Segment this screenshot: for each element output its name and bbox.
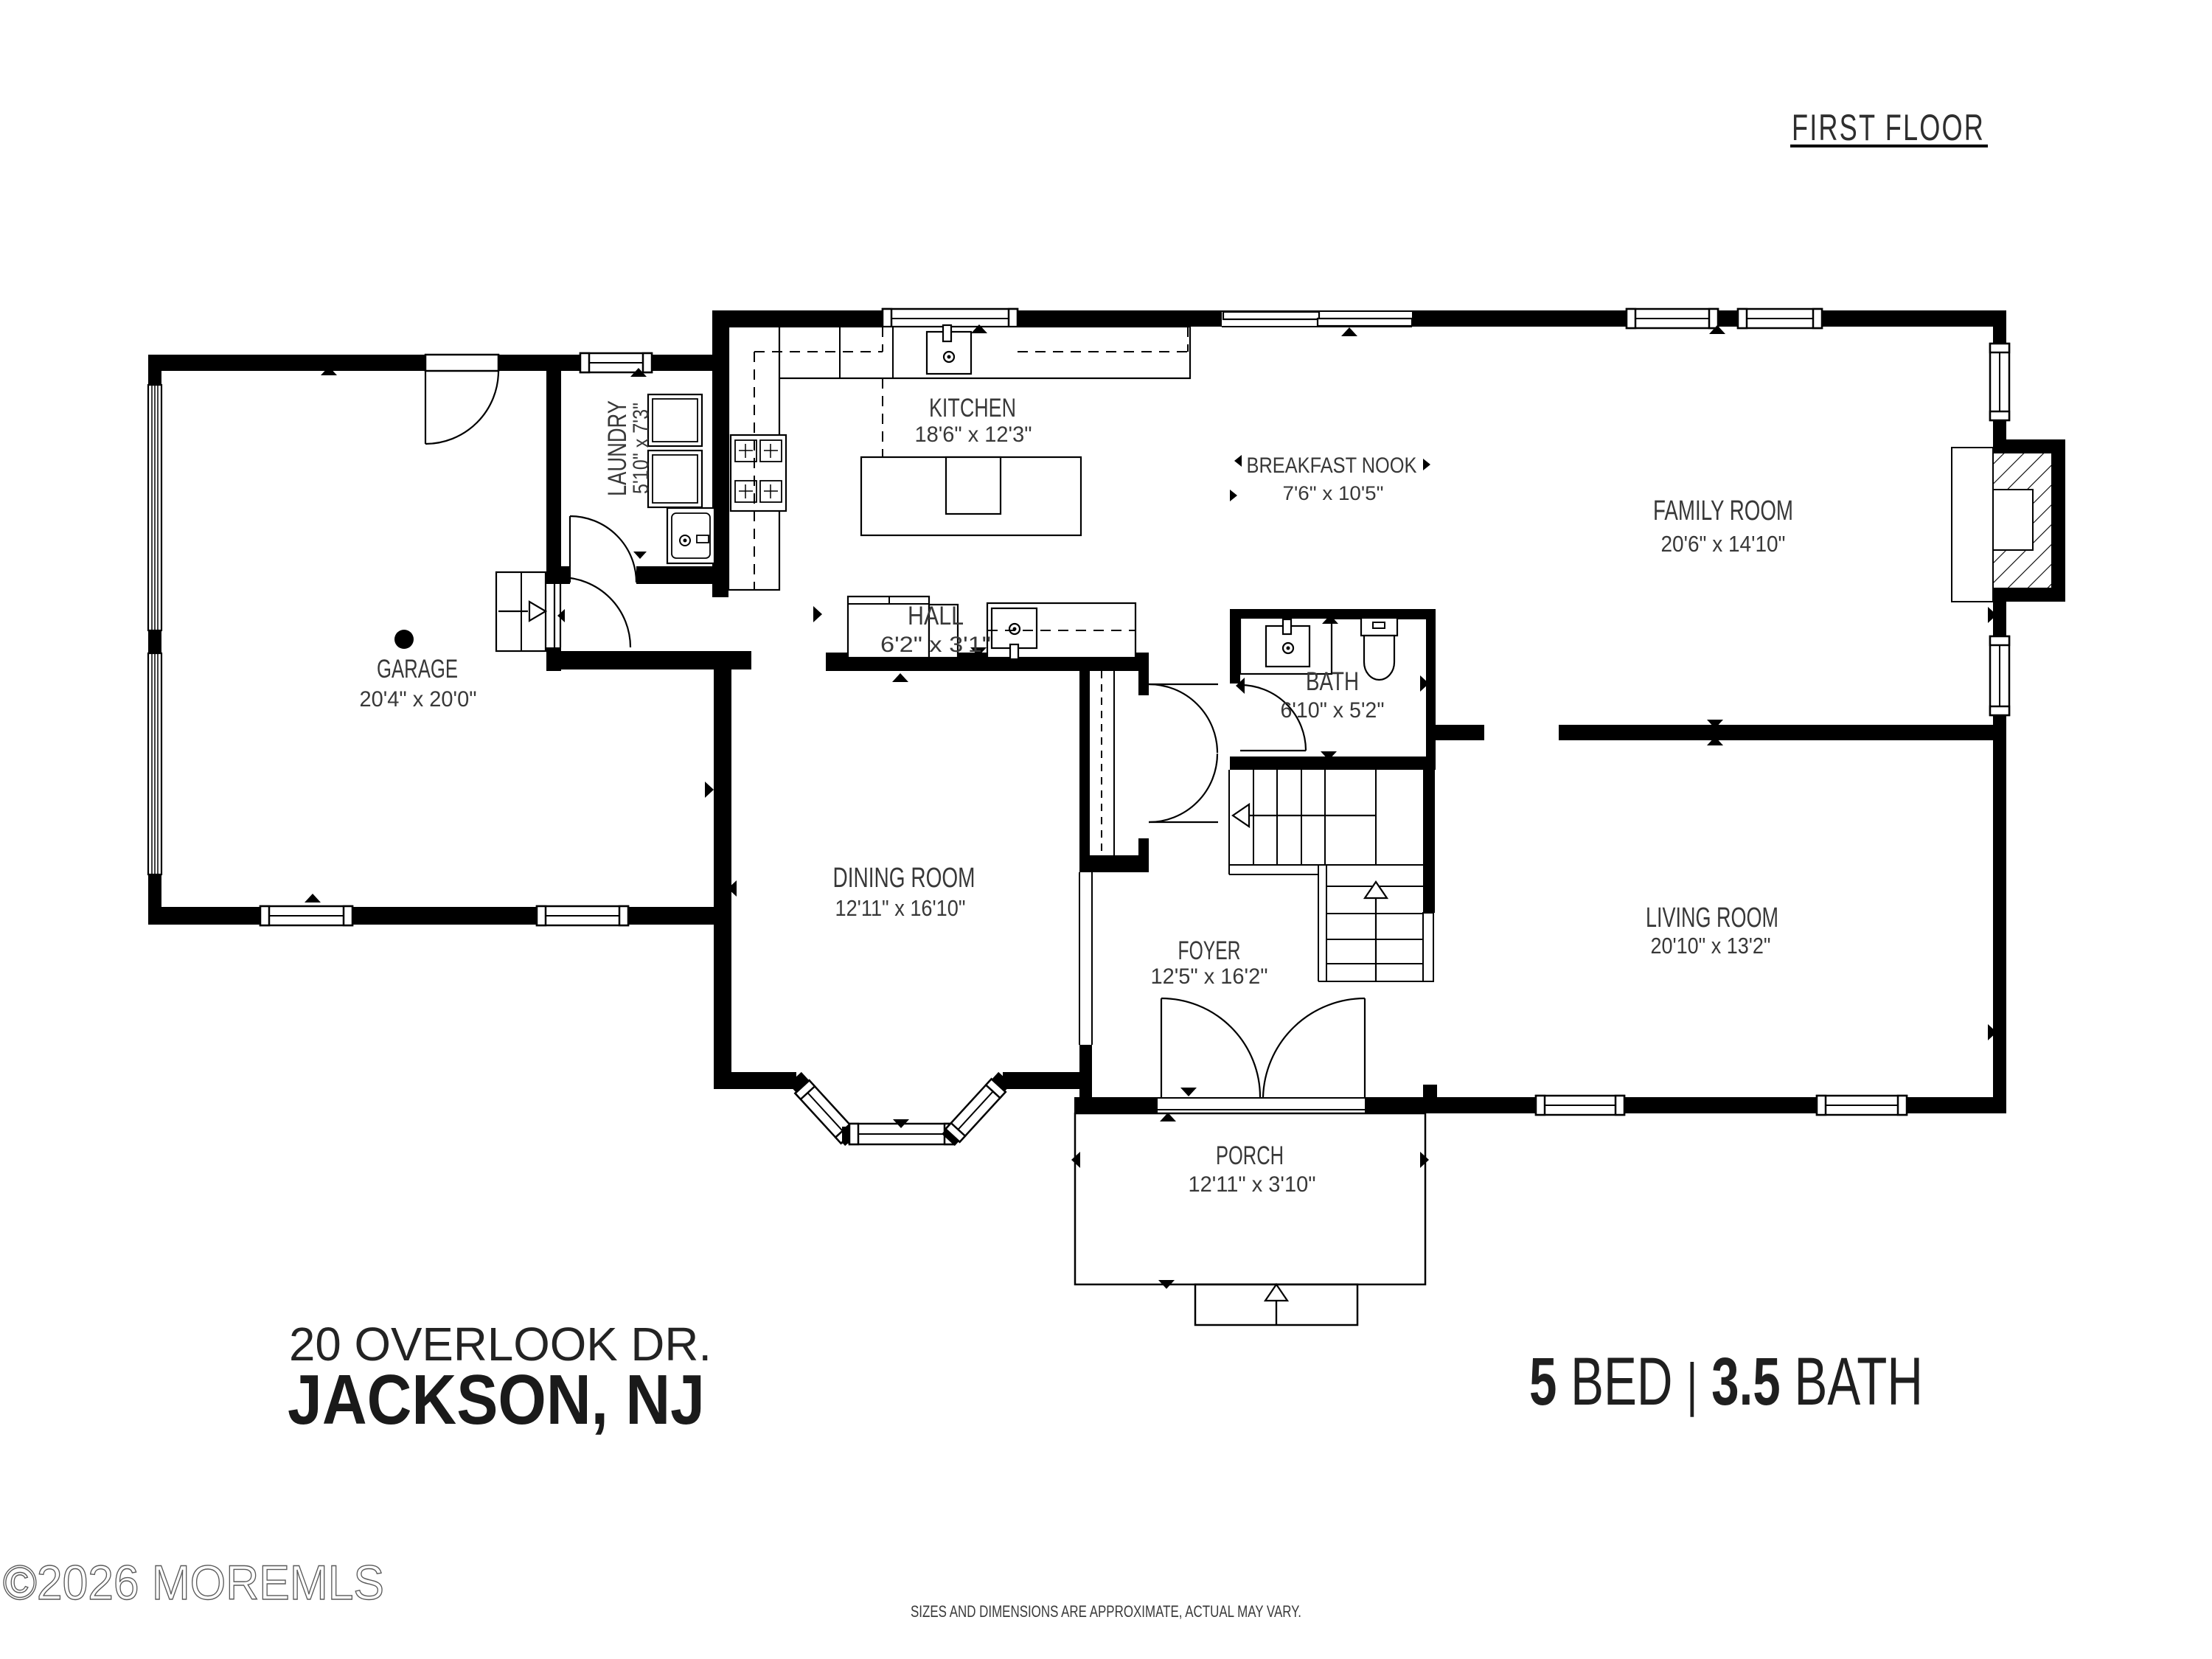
svg-text:©2026 MOREMLS: ©2026 MOREMLS [3,1555,384,1610]
svg-text:12'11" x 16'10": 12'11" x 16'10" [835,895,966,921]
svg-text:FAMILY ROOM: FAMILY ROOM [1653,495,1793,526]
svg-text:20'6" x 14'10": 20'6" x 14'10" [1661,531,1786,557]
svg-text:PORCH: PORCH [1216,1141,1284,1170]
svg-text:6'2" x 3'1": 6'2" x 3'1" [880,633,991,657]
svg-text:20'10" x 13'2": 20'10" x 13'2" [1651,933,1771,959]
svg-text:5'10" x 7'3": 5'10" x 7'3" [629,403,653,494]
svg-text:12'5" x 16'2": 12'5" x 16'2" [1151,964,1268,989]
svg-text:HALL: HALL [908,602,964,630]
svg-text:SIZES AND DIMENSIONS ARE APPRO: SIZES AND DIMENSIONS ARE APPROXIMATE, AC… [911,1602,1301,1621]
svg-text:20'4" x 20'0": 20'4" x 20'0" [360,687,477,712]
svg-text:BATH: BATH [1306,667,1359,696]
svg-text:12'11" x 3'10": 12'11" x 3'10" [1189,1172,1316,1197]
svg-text:18'6" x 12'3": 18'6" x 12'3" [915,422,1032,447]
svg-text:7'6" x 10'5": 7'6" x 10'5" [1283,482,1384,504]
svg-text:DINING ROOM: DINING ROOM [833,863,975,894]
svg-text:BREAKFAST NOOK: BREAKFAST NOOK [1247,453,1417,478]
svg-text:FIRST FLOOR: FIRST FLOOR [1792,107,1985,148]
svg-text:KITCHEN: KITCHEN [929,394,1016,422]
svg-text:LAUNDRY: LAUNDRY [603,400,632,496]
svg-text:LIVING ROOM: LIVING ROOM [1646,902,1778,933]
svg-text:6'10" x 5'2": 6'10" x 5'2" [1281,698,1385,723]
svg-text:5 BED | 3.5 BATH: 5 BED | 3.5 BATH [1529,1344,1923,1419]
svg-text:GARAGE: GARAGE [377,655,458,684]
svg-text:JACKSON, NJ: JACKSON, NJ [288,1360,705,1439]
svg-text:FOYER: FOYER [1178,936,1241,965]
